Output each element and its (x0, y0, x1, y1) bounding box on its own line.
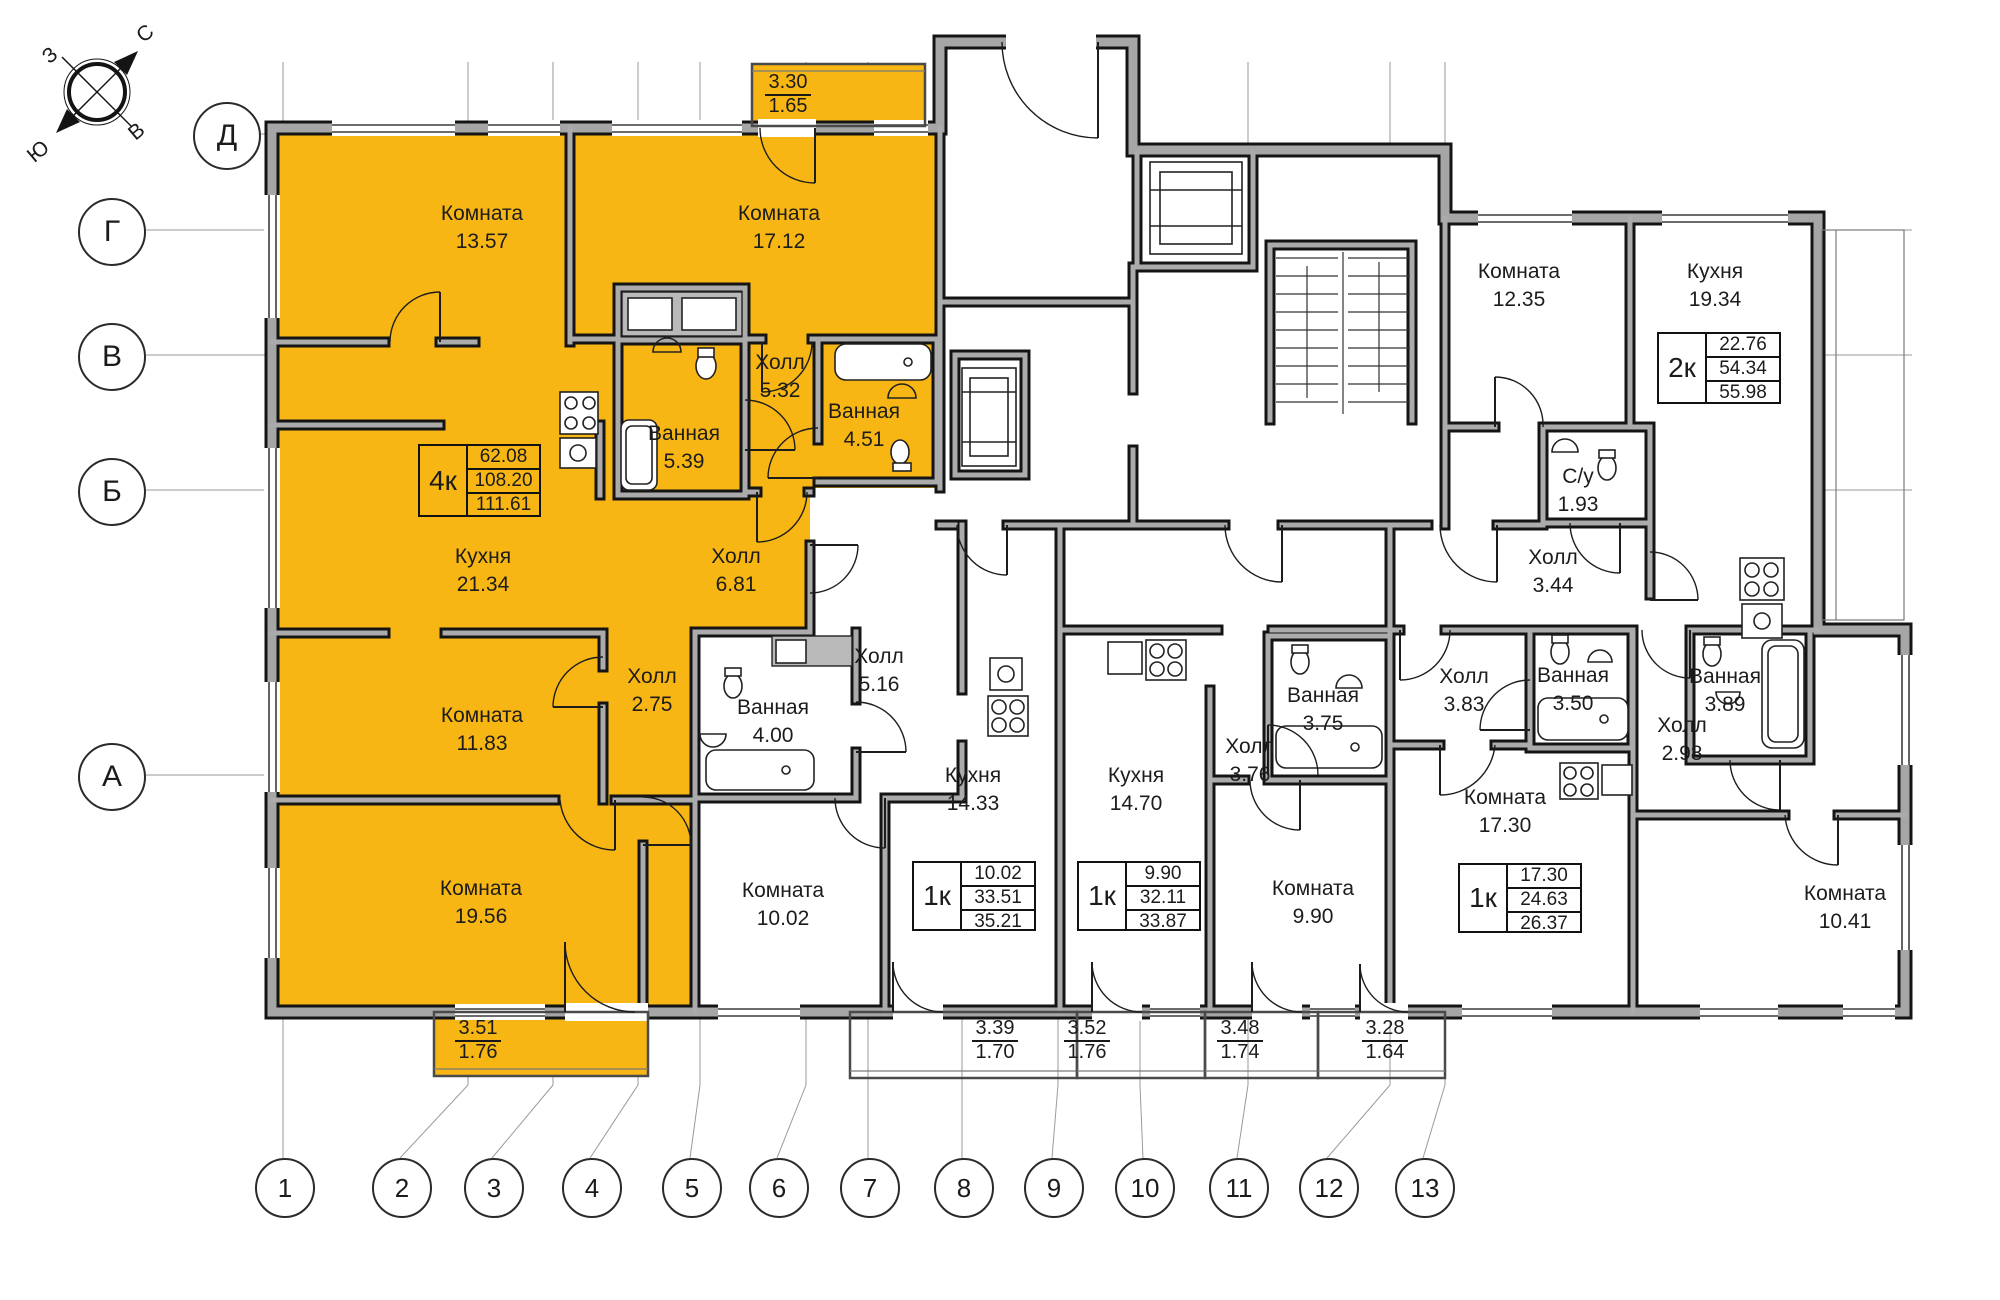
axis-row-b: Б (78, 458, 146, 526)
apartment-info-2k[interactable]: 2к 22.7654.3455.98 (1657, 332, 1781, 404)
room-label: Холл5.16 (794, 646, 964, 695)
room-label: С/у1.93 (1493, 466, 1663, 515)
room-label: Кухня14.33 (888, 765, 1058, 814)
compass-icon (56, 51, 138, 133)
sink-icon (1108, 642, 1142, 674)
balcony-label: 3.521.76 (1052, 1018, 1122, 1063)
axis-row-g: Г (78, 198, 146, 266)
room-label: Кухня19.34 (1630, 261, 1800, 310)
room-label: Комната12.35 (1434, 261, 1604, 310)
balcony-label: 3.301.65 (753, 72, 823, 117)
room-label: Комната10.02 (698, 880, 868, 929)
axis-col-8: 8 (934, 1158, 994, 1218)
floor-plan-drawing (0, 0, 2000, 1300)
room-label: Холл2.98 (1597, 715, 1767, 764)
axis-col-7: 7 (840, 1158, 900, 1218)
room-label: Ванная3.50 (1488, 665, 1658, 714)
room-label: Комната17.12 (694, 203, 864, 252)
room-label: Комната10.41 (1760, 883, 1930, 932)
axis-col-11: 11 (1209, 1158, 1269, 1218)
room-label: Ванная4.51 (779, 401, 949, 450)
axis-col-13: 13 (1395, 1158, 1455, 1218)
sink-icon (990, 658, 1022, 690)
axis-col-9: 9 (1024, 1158, 1084, 1218)
room-label: Комната11.83 (397, 705, 567, 754)
axis-col-1: 1 (255, 1158, 315, 1218)
sink-icon (1742, 604, 1782, 638)
axis-col-10: 10 (1115, 1158, 1175, 1218)
axis-col-6: 6 (749, 1158, 809, 1218)
room-label: Комната9.90 (1228, 878, 1398, 927)
axis-row-v: В (78, 323, 146, 391)
room-label: Холл6.81 (651, 546, 821, 595)
balcony-label: 3.481.74 (1205, 1018, 1275, 1063)
room-label: Комната17.30 (1420, 787, 1590, 836)
room-label: Холл5.32 (695, 352, 865, 401)
axis-col-2: 2 (372, 1158, 432, 1218)
apartment-info-1k-c[interactable]: 1к 17.3024.6326.37 (1458, 863, 1582, 933)
apartment-info-1k-b[interactable]: 1к 9.9032.1133.87 (1077, 861, 1201, 931)
axis-col-5: 5 (662, 1158, 722, 1218)
elevator-icon (962, 368, 1016, 466)
room-label: Холл3.76 (1165, 736, 1335, 785)
axis-col-3: 3 (464, 1158, 524, 1218)
room-label: Комната19.56 (396, 878, 566, 927)
axis-col-12: 12 (1299, 1158, 1359, 1218)
axis-row-a: А (78, 743, 146, 811)
floor-plan: Комната13.57 Комната17.12 Ванная5.39 Хол… (0, 0, 2000, 1300)
axis-col-4: 4 (562, 1158, 622, 1218)
room-label: Ванная5.39 (599, 423, 769, 472)
bathtub-icon (706, 750, 814, 790)
room-label: Ванная3.89 (1640, 666, 1810, 715)
room-label: Холл3.44 (1468, 547, 1638, 596)
apartment-type: 1к (1460, 865, 1508, 931)
apartment-type: 4к (420, 446, 468, 515)
apartment-type: 1к (1079, 863, 1127, 929)
apartment-info-4k[interactable]: 4к 62.08108.20111.61 (418, 444, 541, 517)
axis-row-d: Д (193, 102, 261, 170)
apartment-type: 2к (1659, 334, 1707, 402)
apartment-type: 1к (914, 863, 962, 929)
balcony-label: 3.391.70 (960, 1018, 1030, 1063)
balcony-label: 3.281.64 (1350, 1018, 1420, 1063)
room-label: Кухня21.34 (398, 546, 568, 595)
room-label: Комната13.57 (397, 203, 567, 252)
room-label: Ванная4.00 (688, 697, 858, 746)
balcony-label: 3.511.76 (443, 1018, 513, 1063)
sink-icon (1602, 765, 1632, 795)
apartment-info-1k-a[interactable]: 1к 10.0233.5135.21 (912, 861, 1036, 931)
elevator-icon (1150, 162, 1242, 254)
sink-icon (560, 438, 596, 468)
